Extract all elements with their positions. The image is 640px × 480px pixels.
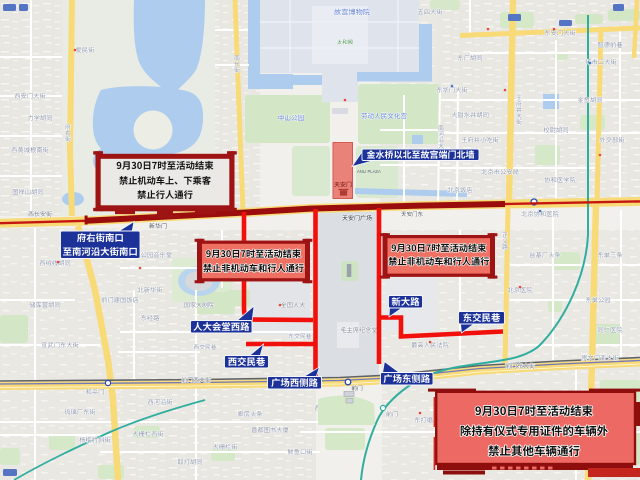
svg-text:ANLI PLAZA: ANLI PLAZA: [357, 169, 381, 174]
